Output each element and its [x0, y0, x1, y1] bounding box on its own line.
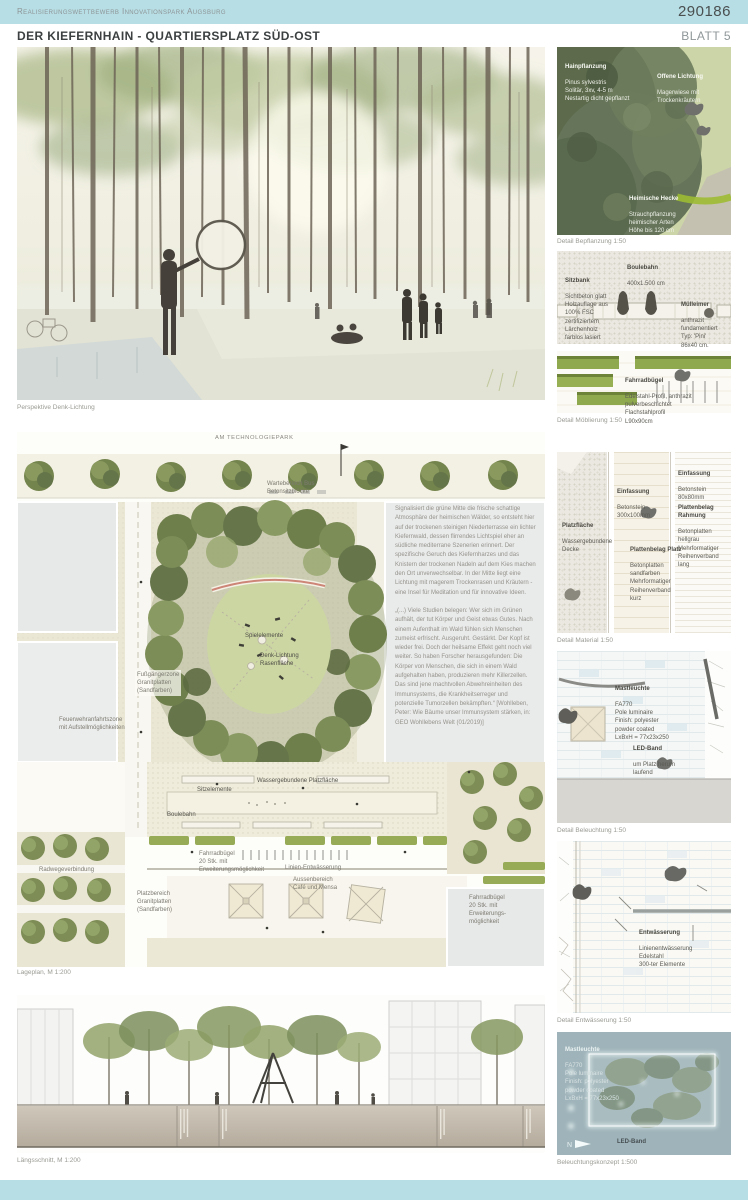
label-fussgaengerzone: Fußgängerzone Granitplatten (Sandfarben) — [135, 670, 181, 696]
label-hainpflanzung-body: Pinus sylvestris Solitär, 3xv, 4-5 m Nes… — [565, 80, 629, 102]
sheet-title: DER KIEFERNHAIN - QUARTIERSPLATZ SÜD-OST — [17, 29, 320, 43]
detail-material: Platzfläche Wassergebundene Decke Einfas… — [557, 452, 731, 633]
detail-entwaesserung-caption: Detail Entwässerung 1:50 — [557, 1017, 631, 1024]
section-render — [17, 995, 545, 1153]
detail-entwaesserung: Entwässerung Linienentwässerung Edelstah… — [557, 841, 731, 1013]
label-boulebahn-title: Boulebahn — [627, 264, 697, 272]
label-rahmung-body: Betonplatten hellgrau Mehrformatiger Rei… — [678, 529, 719, 567]
label-einfassung1-title: Einfassung — [617, 488, 667, 496]
label-boulebahn-body: 400x1.500 cm — [627, 281, 665, 287]
label-fahrradbuegel-rechts: Fahrradbügel 20 Stk. mit Erweiterungs- m… — [469, 894, 506, 926]
detail-bepflanzung: Hainpflanzung Pinus sylvestris Solitär, … — [557, 47, 731, 235]
label-platzbereich: Platzbereich Granitplatten (Sandfarben) — [137, 890, 172, 914]
boule-lane — [167, 792, 437, 814]
sheet-number: BLATT 5 — [681, 29, 731, 43]
label-sitzbank-title: Sitzbank — [565, 277, 620, 285]
label-fahrradbuegel-links: Fahrradbügel 20 Stk. mit Erweiterungsmög… — [199, 850, 264, 874]
denk-lichtung-clearing — [207, 574, 331, 714]
detail-moeblierung-caption: Detail Möblierung 1:50 — [557, 417, 622, 424]
building-footprint — [17, 642, 117, 762]
description-paragraph-2: „(...) Viele Studien belegen: Wer sich i… — [395, 607, 537, 728]
presentation-board: Realisierungswettbewerb Innovationspark … — [0, 0, 748, 1200]
lighting-concept-caption: Beleuchtungskonzept 1:500 — [557, 1159, 637, 1166]
label-platzflaeche-title: Platzfläche — [562, 522, 608, 530]
west-tree-rows — [21, 834, 111, 944]
siteplan-caption: Lageplan, M 1:200 — [17, 969, 71, 976]
label-feuerwehr: Feuerwehranfahrtszone mit Aufstellmöglic… — [59, 716, 125, 732]
perspective-illustration — [17, 47, 545, 400]
perspective-caption: Perspektive Denk-Lichtung — [17, 404, 95, 411]
detail-beleuchtung: Mastleuchte FA770 Pole luminaire Finish:… — [557, 651, 731, 823]
label-radweg: Radwegeverbindung — [39, 866, 94, 874]
detail-moeblierung-bench: Boulebahn 400x1.500 cm Sitzbank Sichtbet… — [557, 251, 731, 344]
label-platzflaeche-body: Wassergebundene Decke — [562, 539, 612, 553]
label-ledband-body: um Platz herum laufend — [633, 762, 675, 776]
siteplan: AM TECHNOLOGIEPARK Wartebereich Bus Beto… — [17, 432, 545, 967]
label-aussenbereich: Aussenbereich Café und Mensa — [293, 876, 337, 892]
detail-material-caption: Detail Material 1:50 — [557, 637, 613, 644]
label-mastleuchte-title: Mastleuchte — [615, 685, 677, 693]
label-konzept-mast-title: Mastleuchte — [565, 1046, 635, 1054]
label-konzept-led-title: LED-Band — [617, 1138, 707, 1146]
label-fahrradbuegel-title: Fahrradbügel — [625, 377, 715, 385]
label-mastleuchte-body: FA770 Pole luminaire Finish: polyester p… — [615, 702, 669, 740]
label-denklichtung: Denk-Lichtung Rasenfläche — [260, 652, 299, 668]
label-hainpflanzung-title: Hainpflanzung — [565, 63, 645, 71]
footer-bar — [0, 1180, 748, 1200]
label-boulebahn: Boulebahn — [167, 811, 196, 819]
label-einfassung2-title: Einfassung — [678, 470, 728, 478]
section-caption: Längsschnitt, M 1:200 — [17, 1157, 81, 1164]
section-drawing — [17, 995, 545, 1153]
label-belag-platz-body: Betonplatten sandfarben Mehrformatiger R… — [630, 563, 671, 601]
entry-number: 290186 — [678, 3, 731, 20]
bird-icon — [665, 866, 687, 881]
competition-label: Realisierungswettbewerb Innovationspark … — [17, 7, 226, 16]
label-muelleimer-body: anthrazit fundamentiert Typ: 'Pini' 86x4… — [681, 318, 718, 348]
label-entwaesserung-title: Entwässerung — [639, 929, 709, 937]
label-linienentwaesserung: Linien-Entwässerung — [285, 864, 341, 872]
label-einfassung1-body: Betonstein 300x100mm — [617, 505, 650, 519]
label-konzept-mast-body: FA770 Pole luminaire Finish: polyester p… — [565, 1063, 619, 1101]
label-hecke-body: Strauchpflanzung heimischer Arten Höhe b… — [629, 212, 687, 235]
perspective-render — [17, 47, 545, 400]
label-belag-platz-title: Plattenbelag Platz — [630, 546, 682, 554]
detail-beleuchtung-caption: Detail Beleuchtung 1:50 — [557, 827, 626, 834]
building-footprint — [17, 502, 117, 632]
label-ledband-title: LED-Band — [633, 745, 693, 753]
description-paragraph-1: Signalisiert die grüne Mitte die frische… — [395, 505, 537, 598]
section-ground — [17, 1106, 545, 1147]
description-text: Signalisiert die grüne Mitte die frische… — [395, 505, 537, 737]
label-wartebereich: Wartebereich Bus Betonsitzblöcke — [267, 480, 314, 496]
label-lichtung-title: Offene Lichtung — [657, 73, 727, 81]
svg-text:N: N — [567, 1142, 572, 1149]
detail-bepflanzung-caption: Detail Bepflanzung 1:50 — [557, 238, 626, 245]
street-label: AM TECHNOLOGIEPARK — [215, 435, 294, 443]
label-lichtung-body: Magerwiese mit Trockenkräutern — [657, 90, 700, 104]
lighting-concept: N Mastleuchte FA770 Pole luminaire Finis… — [557, 1032, 731, 1155]
label-rahmung-title: Plattenbelag Rahmung — [678, 504, 730, 520]
label-hecke-title: Heimische Hecke — [629, 195, 704, 203]
label-sitzelemente: Sitzelemente — [197, 786, 232, 794]
label-wassergebunden: Wassergebundene Platzfläche — [257, 777, 338, 785]
person-silhouette — [573, 884, 592, 900]
label-entwaesserung-body: Linienentwässerung Edelstahl 300-ter Ele… — [639, 946, 692, 968]
detail-moeblierung-hedges: Fahrradbügel Edelstahl-Profil, anthrazit… — [557, 351, 731, 413]
label-spielelemente: Spielelemente — [245, 632, 283, 640]
label-fahrradbuegel-body: Edelstahl-Profil, anthrazit pulverbeschi… — [625, 394, 692, 424]
label-sitzbank-body: Sichtbeton glatt Holzauflage aus 100% FS… — [565, 294, 608, 340]
label-muelleimer-title: Mülleimer — [681, 301, 729, 309]
bird-icon — [565, 588, 581, 600]
